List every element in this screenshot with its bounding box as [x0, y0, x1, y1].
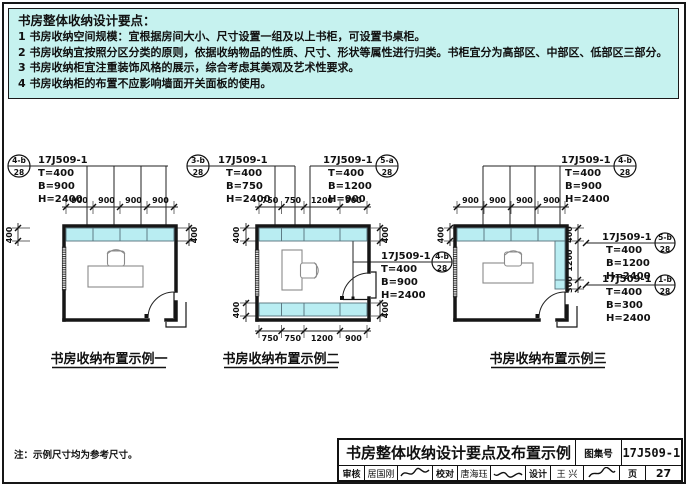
room-plan	[453, 226, 577, 327]
door-jamb	[145, 314, 149, 318]
callout-id: 4-b	[618, 156, 632, 165]
window	[453, 247, 457, 297]
door-arc	[539, 292, 565, 318]
dim-value: 750	[284, 196, 301, 205]
dim-value: 900	[98, 196, 115, 205]
diagram-caption: 书房收纳布置示例三	[489, 351, 606, 367]
diagram-example-2: 3-b 28 17J509-1 T=400 B=750 H=2400 5-a 2…	[180, 150, 456, 380]
spec-line-b: B=900	[381, 277, 418, 288]
notes-panel: 书房整体收纳设计要点： 1 书房收纳空间规模：宜根据房间大小、尺寸设置一组及以上…	[8, 8, 679, 99]
callout-she​et: 28	[660, 287, 670, 296]
diagram-example-3: 4-b 28 17J509-1 T=400 B=900 H=2400 5-b 2…	[440, 150, 688, 380]
spec-line-t: T=400	[606, 245, 642, 256]
dim-value: 400	[437, 226, 446, 243]
page-label: 页	[619, 466, 645, 480]
checker-label: 校对	[432, 466, 457, 480]
door-arc	[148, 292, 174, 318]
callout-bubble: 4-b 28	[8, 155, 30, 177]
signature-scribble	[493, 467, 523, 479]
dim-value: 900	[489, 196, 506, 205]
dimension-left-bottom: 400	[232, 300, 258, 322]
spec-line-h: H=2400	[606, 313, 651, 324]
dim-value: 750	[284, 334, 301, 343]
designer-name: 王 兴	[550, 466, 583, 480]
spec-line-b: B=900	[565, 181, 602, 192]
callout-bubble: 5-b 28	[655, 233, 675, 254]
titleblock: 书房整体收纳设计要点及布置示例 图集号 17J509-1 审核 居国刚 校对 唐…	[337, 438, 683, 482]
chair	[301, 263, 317, 278]
note-item-1: 1 书房收纳空间规模：宜根据房间大小、尺寸设置一组及以上书柜，可设置书桌柜。	[18, 29, 669, 45]
notes-title: 书房整体收纳设计要点：	[18, 12, 669, 29]
checker-name: 唐海珏	[457, 466, 490, 480]
threshold-step	[371, 272, 376, 298]
designer-label: 设计	[525, 466, 550, 480]
spec-line-t: T=400	[38, 168, 74, 179]
callout-spec: 17J509-1 T=400 B=900 H=2400	[482, 155, 615, 232]
callout-bubble: 3-b 28	[187, 155, 209, 177]
diagram-caption: 书房收纳布置示例二	[222, 351, 339, 367]
spec-line-t: T=400	[381, 264, 417, 275]
dimension-left-top: 400	[232, 223, 258, 246]
spec-line-h: H=2400	[381, 290, 426, 301]
page-number: 27	[645, 466, 681, 480]
cabinet-right	[555, 241, 565, 289]
dimension-chain-top: 900 900 900 900	[453, 196, 569, 214]
spec-line-t: T=400	[606, 287, 642, 298]
dim-value: 400	[5, 226, 14, 243]
dim-value: 900	[125, 196, 142, 205]
dim-value: 400	[381, 226, 390, 243]
room-plan	[62, 226, 186, 327]
note-item-4: 4 书房收纳柜的布置不应影响墙面开关面板的使用。	[18, 76, 669, 92]
callout-ref: 17J509-1	[602, 274, 652, 285]
callout-ref: 17J509-1	[323, 155, 373, 166]
callout-bubble: 1-b 28	[655, 275, 675, 296]
window	[62, 247, 66, 290]
dim-value: 400	[232, 226, 241, 243]
dimension-right-top: 400	[371, 223, 390, 246]
dim-value: 900	[543, 196, 560, 205]
callout-ref: 17J509-1	[602, 232, 652, 243]
dimension-chain-top: 750 750 1200 900	[255, 196, 371, 214]
callout-spec: 17J509-1 T=400 B=900 H=2400	[352, 239, 433, 302]
callout-sheet: 28	[382, 168, 392, 177]
callout-spec: 17J509-1 T=400 B=300 H=2400	[583, 274, 655, 324]
spec-line-b: B=300	[606, 300, 643, 311]
dim-value: 900	[345, 196, 362, 205]
dimension-right-bottom: 400	[371, 300, 390, 322]
spec-line-h: H=2400	[565, 194, 610, 205]
spec-line-t: T=400	[565, 168, 601, 179]
callout-spec: 17J509-1 T=400 B=750 H=2400	[209, 155, 297, 232]
dim-value: 1200	[311, 196, 334, 205]
dim-value: 1200	[311, 334, 334, 343]
dimension-chain-top: 900 900 900 900	[62, 196, 178, 214]
spec-line-b: B=750	[226, 181, 263, 192]
room-plan	[255, 226, 376, 320]
checker-signature	[490, 466, 525, 480]
callout-bubble: 5-a 28	[376, 155, 398, 177]
spec-line-t: T=400	[328, 168, 364, 179]
diagram-caption: 书房收纳布置示例一	[50, 351, 167, 367]
callout-sheet: 28	[660, 245, 670, 254]
callout-spec: 17J509-1 T=400 B=900 H=2400	[30, 155, 168, 232]
spec-line-b: B=1200	[328, 181, 372, 192]
callout-id: 5-a	[380, 156, 393, 165]
callout-ref: 17J509-1	[381, 251, 431, 262]
desk	[88, 266, 143, 287]
callout-id: 1-b	[658, 275, 672, 284]
dimension-chain-bottom: 750 750 1200 900	[255, 325, 371, 343]
door-jamb	[536, 314, 540, 318]
dim-value: 900	[462, 196, 479, 205]
callout-id: 5-b	[658, 233, 672, 242]
callout-sheet: 28	[193, 168, 203, 177]
dim-value: 900	[516, 196, 533, 205]
door-jamb	[340, 296, 344, 300]
designer-signature	[583, 466, 619, 480]
dim-value: 400	[381, 301, 390, 318]
callout-ref: 17J509-1	[38, 155, 88, 166]
callout-spec: 17J509-1 T=400 B=1200 H=900	[309, 155, 377, 232]
dim-value: 750	[262, 196, 279, 205]
dim-value: 400	[232, 301, 241, 318]
reviewer-label: 审核	[339, 466, 364, 480]
desk	[282, 250, 302, 290]
callout-bubble: 4-b 28	[614, 155, 636, 177]
atlas-no-label: 图集号	[575, 440, 620, 465]
sheet-title: 书房整体收纳设计要点及布置示例	[339, 440, 575, 465]
chair	[108, 251, 125, 266]
signature-scribble	[587, 467, 617, 479]
footnote: 注：示例尺寸均为参考尺寸。	[14, 447, 138, 461]
cabinet-top	[259, 228, 367, 241]
reviewer-name: 居国刚	[364, 466, 397, 480]
spec-line-t: T=400	[226, 168, 262, 179]
dim-value: 900	[345, 334, 362, 343]
note-item-3: 3 书房收纳柜宜注重装饰风格的展示，综合考虑其美观及艺术性要求。	[18, 60, 669, 76]
callout-sheet: 28	[620, 168, 630, 177]
spec-line-b: B=1200	[606, 258, 650, 269]
dim-value: 900	[71, 196, 88, 205]
callout-id: 4-b	[12, 156, 26, 165]
note-item-2: 2 书房收纳宜按照分区分类的原则，依据收纳物品的性质、尺寸、形状等属性进行归类。…	[18, 45, 669, 61]
door-arc	[343, 273, 370, 300]
cabinet-bottom	[259, 303, 367, 316]
dim-value: 750	[262, 334, 279, 343]
atlas-no-value: 17J509-1	[621, 440, 681, 465]
callout-sheet: 28	[14, 168, 24, 177]
spec-line-b: B=900	[38, 181, 75, 192]
callout-id: 3-b	[191, 156, 205, 165]
dim-value: 900	[152, 196, 169, 205]
dimension-left-depth: 400	[5, 223, 30, 246]
window	[255, 250, 259, 296]
chair	[505, 252, 522, 266]
callout-ref: 17J509-1	[218, 155, 268, 166]
reviewer-signature	[397, 466, 432, 480]
callout-ref: 17J509-1	[561, 155, 611, 166]
signature-scribble	[400, 467, 430, 479]
